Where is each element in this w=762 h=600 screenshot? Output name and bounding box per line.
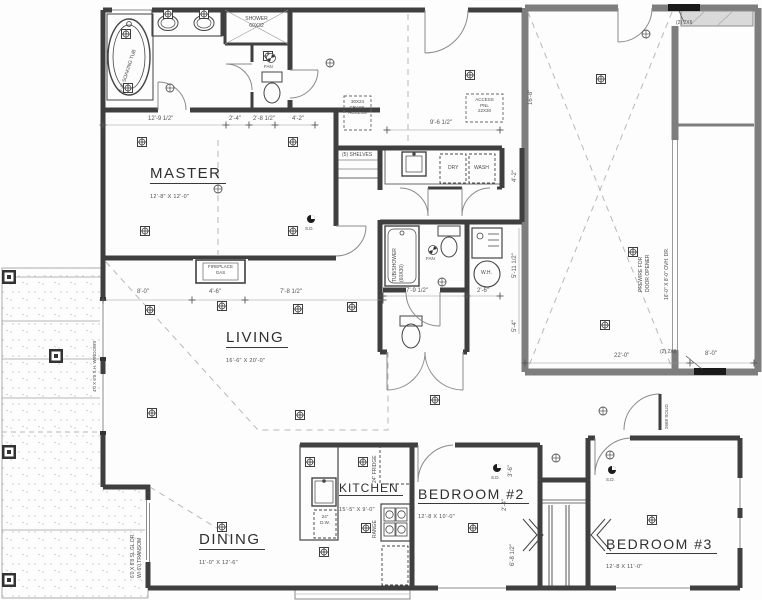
dim-text: 2'-6" <box>477 288 489 295</box>
rear-stoop <box>295 590 410 599</box>
header-label: (2) 2X6 <box>660 349 676 356</box>
smoke-detector-label: S.D. <box>305 226 314 232</box>
fridge-label: 24" FRIDGE <box>372 455 379 483</box>
room-label-kitchen: KITCHEN 15'-5" X 9'-0" <box>339 478 403 516</box>
room-name: LIVING <box>226 329 288 348</box>
floor-plan: MASTER 12'-8" X 12'-0" LIVING 16'-6" X 2… <box>0 0 762 600</box>
room-label-bedroom2: BEDROOM #2 12'-8 X 10'-0" <box>418 485 529 523</box>
light-icon <box>148 409 157 418</box>
water-heater-label: W.H. <box>481 270 492 277</box>
toilet-room-door <box>226 64 252 90</box>
dim-text: 8'-0" <box>705 351 717 358</box>
hall-double-door <box>387 352 425 390</box>
furnace <box>472 228 502 258</box>
dim-text: 16'-8" <box>528 90 535 105</box>
light-icon <box>296 411 305 420</box>
dim-text: 2'-4" <box>502 499 509 511</box>
room-label-dining: DINING 11'-0" X 12'-6" <box>199 530 265 569</box>
light-icon <box>642 30 650 38</box>
light-icon <box>141 227 150 236</box>
washer-label: WASH <box>474 165 489 172</box>
light-icon <box>326 59 334 67</box>
garage-dashed-lines <box>528 12 672 368</box>
sliding-door-label: 6'0 X 6'8 SL.GL.DR. W/ 6'0 TRANSOM <box>130 533 143 578</box>
dishwasher-label: 24" D.W. <box>314 514 336 525</box>
room-dims: 15'-5" X 9'-0" <box>339 507 375 513</box>
room-dims: 11'-0" X 12'-6" <box>199 560 238 566</box>
dim-text: 7'-8 1/2" <box>280 289 302 296</box>
room-name: KITCHEN <box>339 481 403 496</box>
shelves-label: (5) SHELVES <box>342 152 372 159</box>
powder-lav <box>400 316 422 348</box>
kitchen-sink <box>312 478 336 506</box>
access-panel-label: ACCESS PNL 22X30 <box>466 97 503 114</box>
overhead-door-label: 16'-0" X 8'-0" OVH. DR. <box>664 248 671 300</box>
light-icon <box>597 75 606 84</box>
light-icon <box>320 548 329 557</box>
dim-text: 6'-8 1/2" <box>510 544 517 566</box>
room-name: BEDROOM #2 <box>418 486 529 504</box>
light-icon <box>166 84 174 92</box>
dim-text: 12'-9 1/2" <box>148 116 173 123</box>
garage-entry-door <box>624 394 660 430</box>
patio-concrete <box>2 268 148 598</box>
dim-text: 4'-2" <box>292 116 304 123</box>
smoke-detector-icon <box>608 466 616 474</box>
light-icon <box>431 396 440 405</box>
dim-text: 22'-0" <box>614 353 629 360</box>
dim-text: 3'-6" <box>508 465 515 477</box>
patio-post-icon <box>2 573 16 587</box>
pantry-cabinet <box>382 546 408 585</box>
dim-text: 5'-11 1/2" <box>512 253 519 278</box>
light-icon <box>606 451 614 459</box>
room-label-living: LIVING 16'-6" X 20'-0" <box>226 328 288 367</box>
range-label: RANGE <box>372 520 379 538</box>
sliding-glass-door <box>145 500 151 562</box>
door-header-bar <box>668 4 700 11</box>
master-toilet <box>262 72 282 103</box>
room-name: DINING <box>199 531 265 550</box>
room-name: BEDROOM #3 <box>606 536 717 554</box>
hall-bath-door <box>406 292 440 326</box>
room-dims: 12'-8 X 10'-0" <box>418 514 455 520</box>
bedroom2-door <box>418 445 453 482</box>
master-door <box>336 226 366 256</box>
room-label-bedroom3: BEDROOM #3 12'-8 X 11'-0" <box>606 535 717 573</box>
light-icon <box>289 227 298 236</box>
light-icon <box>629 248 638 257</box>
fan-label: FAN <box>426 256 435 262</box>
light-icon <box>438 278 446 286</box>
tub-shower-label: TUB/SHOWER (60X30) <box>392 248 405 282</box>
closet-door <box>290 70 318 98</box>
patio-post-icon <box>49 349 63 363</box>
fan-label: FAN <box>264 64 273 70</box>
light-icon <box>200 10 209 19</box>
light-icon <box>138 138 147 147</box>
light-icon <box>359 458 368 467</box>
dim-text: 7'-9 1/2" <box>406 288 428 295</box>
dim-text: 8'-0" <box>137 289 149 296</box>
light-icon <box>289 138 298 147</box>
light-icon <box>306 458 315 467</box>
light-icon <box>601 321 610 330</box>
laundry-opening <box>400 188 428 216</box>
smoke-detector-icon <box>493 464 501 472</box>
hall-bath-fixtures <box>385 226 502 348</box>
smoke-detector-label: S.D. <box>606 477 615 483</box>
dim-text: 5'-4" <box>512 320 519 332</box>
light-icon <box>362 524 371 533</box>
light-icon <box>648 516 657 525</box>
light-icon <box>599 407 607 415</box>
light-icon <box>552 454 560 462</box>
double-vanity <box>152 10 222 36</box>
dim-text: 2'-8 1/2" <box>253 116 275 123</box>
hall-double-door <box>425 352 463 390</box>
hall-toilet <box>438 226 460 257</box>
light-icon <box>466 71 475 80</box>
fireplace-label: FIREPLACE GAS <box>196 264 245 275</box>
room-label-master: MASTER 12'-8" X 12'-0" <box>150 164 226 203</box>
fan-icon <box>429 246 438 255</box>
header-label: (2) 2X6 <box>676 20 692 27</box>
light-icon <box>164 10 173 19</box>
room-dims: 12'-8 X 11'-0" <box>606 564 643 570</box>
dim-text: 2'-4" <box>229 116 241 123</box>
dimension-ticks <box>100 122 758 367</box>
dim-text: 4'-6" <box>209 289 221 296</box>
garage-walls <box>525 8 758 372</box>
smoke-detector-label: S.D. <box>491 475 500 481</box>
window-note-label: 4'0 X 6'0 S.H. WINDOWS <box>92 341 98 392</box>
laundry-sink <box>402 152 426 176</box>
light-icon <box>218 302 227 311</box>
light-icon <box>294 305 303 314</box>
door-swings <box>158 8 660 482</box>
prewire-label: PREWIRE FOR DOOR OPENER <box>638 254 651 292</box>
shower-label: SHOWER 60X32 <box>225 16 288 29</box>
light-icon <box>469 524 478 533</box>
light-icon <box>146 306 155 315</box>
overhead-door-16-panel <box>673 140 678 350</box>
door-header-bar <box>694 368 726 375</box>
smoke-detector-icon <box>307 215 315 223</box>
crawl-access-label: 30X24 CRAWL ACCESS <box>344 99 371 116</box>
room-name: MASTER <box>150 165 226 184</box>
laundry-opening <box>462 188 490 216</box>
light-icon <box>348 303 357 312</box>
dryer-label: DRY <box>448 165 458 172</box>
bedroom-closets <box>523 500 611 586</box>
garage-entry-door-label: 2668 SOLID <box>664 404 670 429</box>
room-dims: 12'-8" X 12'-0" <box>150 194 189 200</box>
room-dims: 16'-6" X 20'-0" <box>226 358 265 364</box>
front-door <box>425 10 468 53</box>
light-icon <box>122 30 131 39</box>
dim-text: 9'-6 1/2" <box>430 120 452 127</box>
patio-post-icon <box>2 445 16 459</box>
dimension-lines <box>103 125 754 363</box>
patio-post-icon <box>2 270 16 284</box>
dim-text: 4'-2" <box>512 170 519 182</box>
fan-icon <box>267 54 276 63</box>
